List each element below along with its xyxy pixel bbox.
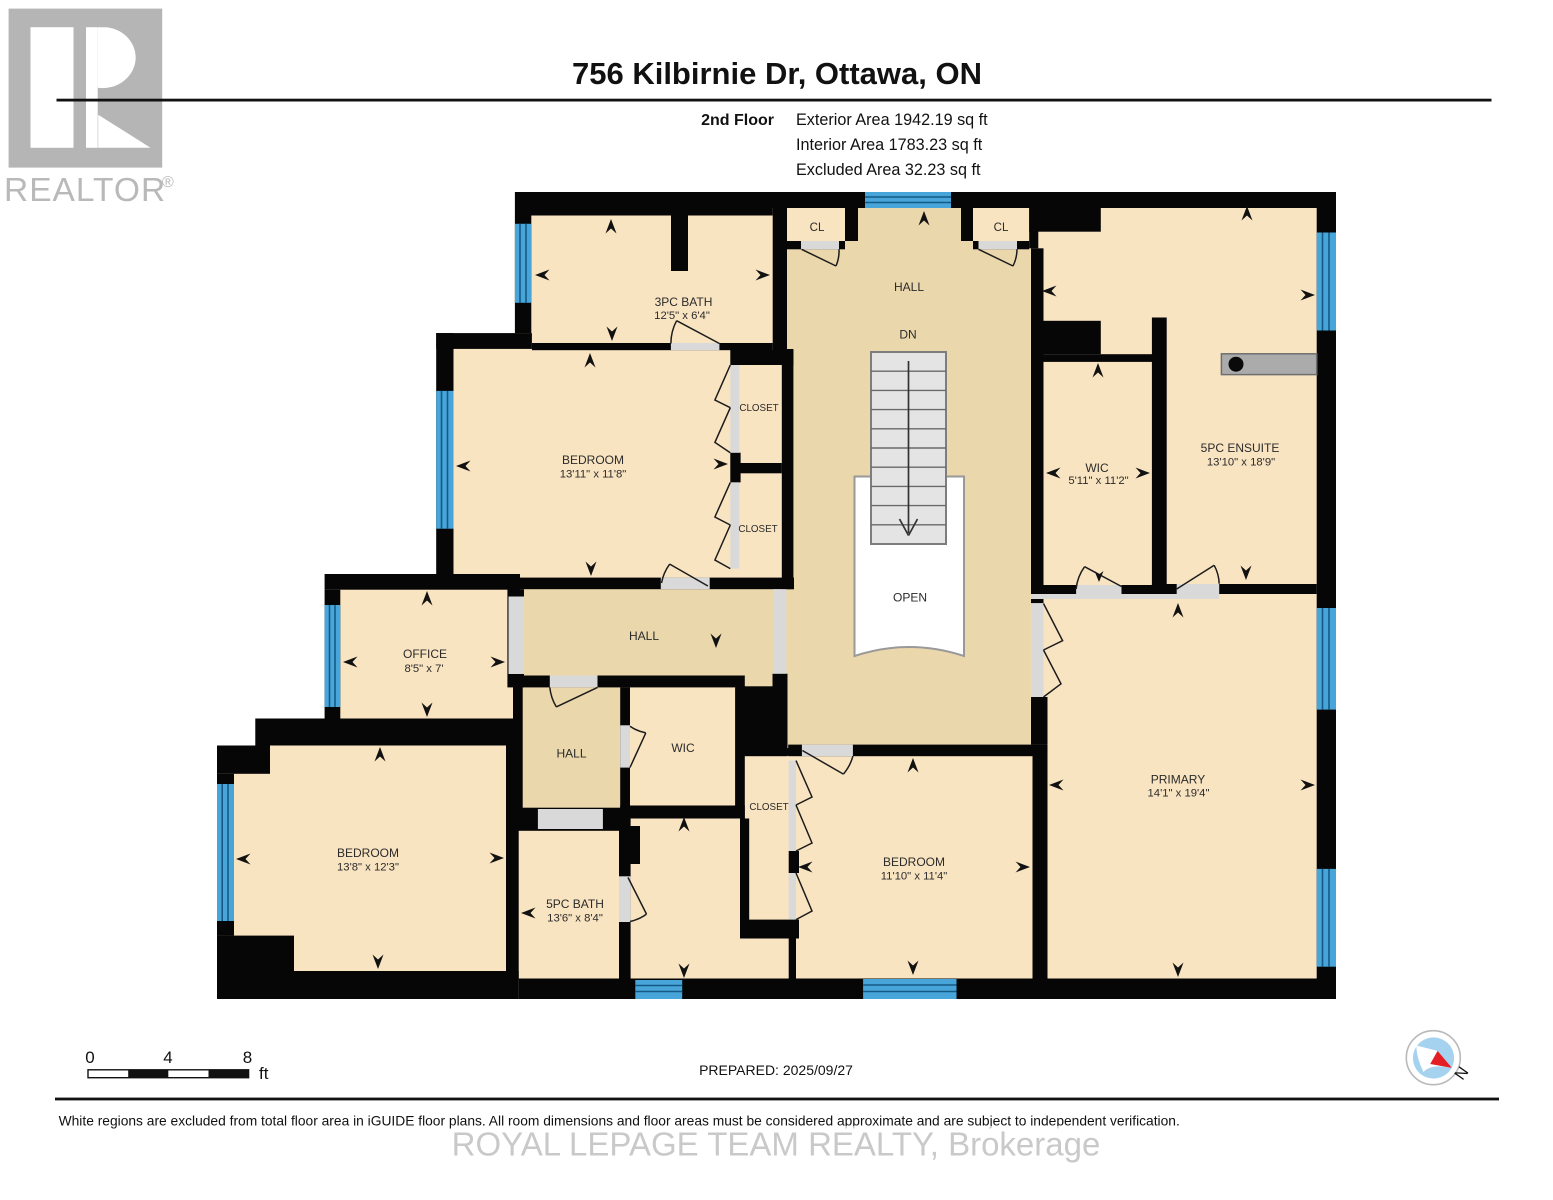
svg-text:OFFICE: OFFICE	[403, 647, 447, 661]
svg-text:CLOSET: CLOSET	[749, 802, 788, 813]
svg-text:ft: ft	[259, 1064, 269, 1083]
svg-text:Interior Area 1783.23 sq ft: Interior Area 1783.23 sq ft	[796, 136, 983, 154]
svg-text:11'10" x 11'4": 11'10" x 11'4"	[881, 871, 948, 883]
svg-text:HALL: HALL	[894, 280, 924, 294]
svg-text:®: ®	[162, 174, 174, 191]
svg-text:13'10" x 18'9": 13'10" x 18'9"	[1207, 457, 1275, 469]
svg-text:CL: CL	[994, 222, 1009, 234]
svg-text:Excluded Area 32.23 sq ft: Excluded Area 32.23 sq ft	[796, 161, 981, 179]
svg-text:CLOSET: CLOSET	[738, 524, 777, 535]
svg-text:Exterior Area 1942.19 sq ft: Exterior Area 1942.19 sq ft	[796, 111, 988, 129]
svg-text:BEDROOM: BEDROOM	[337, 846, 399, 860]
svg-text:8'5" x 7': 8'5" x 7'	[404, 663, 443, 675]
svg-text:HALL: HALL	[629, 629, 659, 643]
svg-text:5PC ENSUITE: 5PC ENSUITE	[1201, 441, 1280, 455]
svg-text:13'8" x 12'3": 13'8" x 12'3"	[337, 862, 399, 874]
svg-text:3PC BATH: 3PC BATH	[655, 295, 713, 309]
svg-text:ROYAL LEPAGE TEAM REALTY, Brok: ROYAL LEPAGE TEAM REALTY, Brokerage	[452, 1126, 1101, 1163]
svg-text:BEDROOM: BEDROOM	[562, 453, 624, 467]
svg-text:BEDROOM: BEDROOM	[883, 855, 945, 869]
svg-text:14'1" x 19'4": 14'1" x 19'4"	[1148, 788, 1210, 800]
svg-text:0: 0	[85, 1048, 94, 1067]
svg-text:WIC: WIC	[1085, 461, 1109, 475]
svg-text:PRIMARY: PRIMARY	[1151, 773, 1205, 787]
svg-text:2nd Floor: 2nd Floor	[701, 112, 774, 129]
svg-text:13'6" x 8'4": 13'6" x 8'4"	[547, 913, 603, 925]
svg-text:13'11" x 11'8": 13'11" x 11'8"	[560, 469, 627, 481]
svg-text:REALTOR: REALTOR	[4, 172, 166, 209]
svg-text:HALL: HALL	[556, 747, 586, 761]
svg-text:CLOSET: CLOSET	[739, 403, 778, 414]
svg-text:5'11" x 11'2": 5'11" x 11'2"	[1068, 475, 1128, 487]
svg-text:PREPARED: 2025/09/27: PREPARED: 2025/09/27	[699, 1062, 853, 1078]
svg-text:OPEN: OPEN	[893, 591, 927, 605]
svg-text:5PC BATH: 5PC BATH	[546, 897, 604, 911]
svg-text:8: 8	[243, 1048, 252, 1067]
svg-text:DN: DN	[899, 328, 916, 342]
svg-text:WIC: WIC	[671, 741, 695, 755]
svg-text:12'5" x 6'4": 12'5" x 6'4"	[654, 310, 710, 322]
svg-text:CL: CL	[810, 222, 825, 234]
svg-text:756 Kilbirnie Dr, Ottawa, ON: 756 Kilbirnie Dr, Ottawa, ON	[572, 56, 982, 91]
svg-text:4: 4	[163, 1048, 172, 1067]
